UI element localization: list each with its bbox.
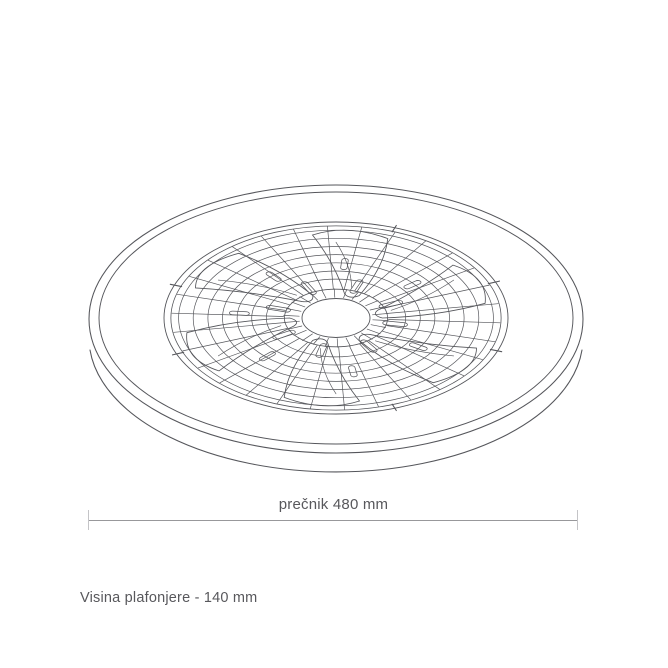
grille-clip	[488, 281, 499, 284]
grille-spoke	[350, 346, 379, 406]
grille-clip	[170, 284, 181, 286]
fan-blade-rib	[391, 280, 454, 310]
hub-spoke	[310, 293, 318, 301]
hub-spoke	[360, 295, 370, 302]
hub-spoke	[373, 314, 388, 315]
grille-spoke	[373, 253, 452, 297]
grille-clip	[490, 349, 501, 351]
grille-spoke	[261, 236, 312, 292]
diameter-dimension-line	[89, 520, 578, 521]
blade-slot-outer	[348, 365, 358, 377]
dimension-tick-left	[88, 510, 89, 530]
hub-spoke	[284, 321, 299, 322]
grille-spoke	[387, 326, 495, 342]
hub-spoke	[373, 320, 389, 321]
hub-spoke	[284, 315, 300, 316]
hub-spoke	[367, 329, 380, 334]
diameter-label: prečnik 480 mm	[89, 497, 578, 513]
grille-spoke	[177, 294, 285, 310]
grille-spoke	[360, 344, 411, 400]
grille-clip	[392, 404, 396, 410]
hub-spoke	[354, 336, 362, 344]
fan-blade-rib	[336, 242, 352, 287]
height-label: Visina plafonjere - 140 mm	[80, 590, 257, 606]
fan-technical-drawing	[0, 0, 668, 668]
dimension-tick-right	[577, 510, 578, 530]
hub-hole	[302, 299, 370, 338]
hub-spoke	[346, 338, 350, 346]
hub-spoke	[371, 325, 386, 328]
hub-spoke	[322, 290, 326, 298]
hub-spoke	[286, 309, 301, 312]
grille-spoke	[294, 229, 323, 289]
hub-spoke	[313, 337, 320, 345]
hub-spoke	[366, 301, 378, 306]
hub-spoke	[303, 334, 313, 341]
hub-spoke	[292, 302, 305, 307]
hub-spoke	[334, 289, 335, 298]
hub-spoke	[344, 289, 347, 297]
grille-clip	[173, 352, 184, 355]
product-dimension-diagram: prečnik 480 mm Visina plafonjere - 140 m…	[0, 0, 668, 668]
grille-clip	[392, 226, 396, 232]
grille-spoke	[220, 339, 299, 383]
fan-wireframe-group	[89, 185, 583, 472]
disc-bottom-edge	[90, 350, 582, 472]
hub-spoke	[337, 339, 338, 348]
hub-spoke	[294, 330, 306, 335]
